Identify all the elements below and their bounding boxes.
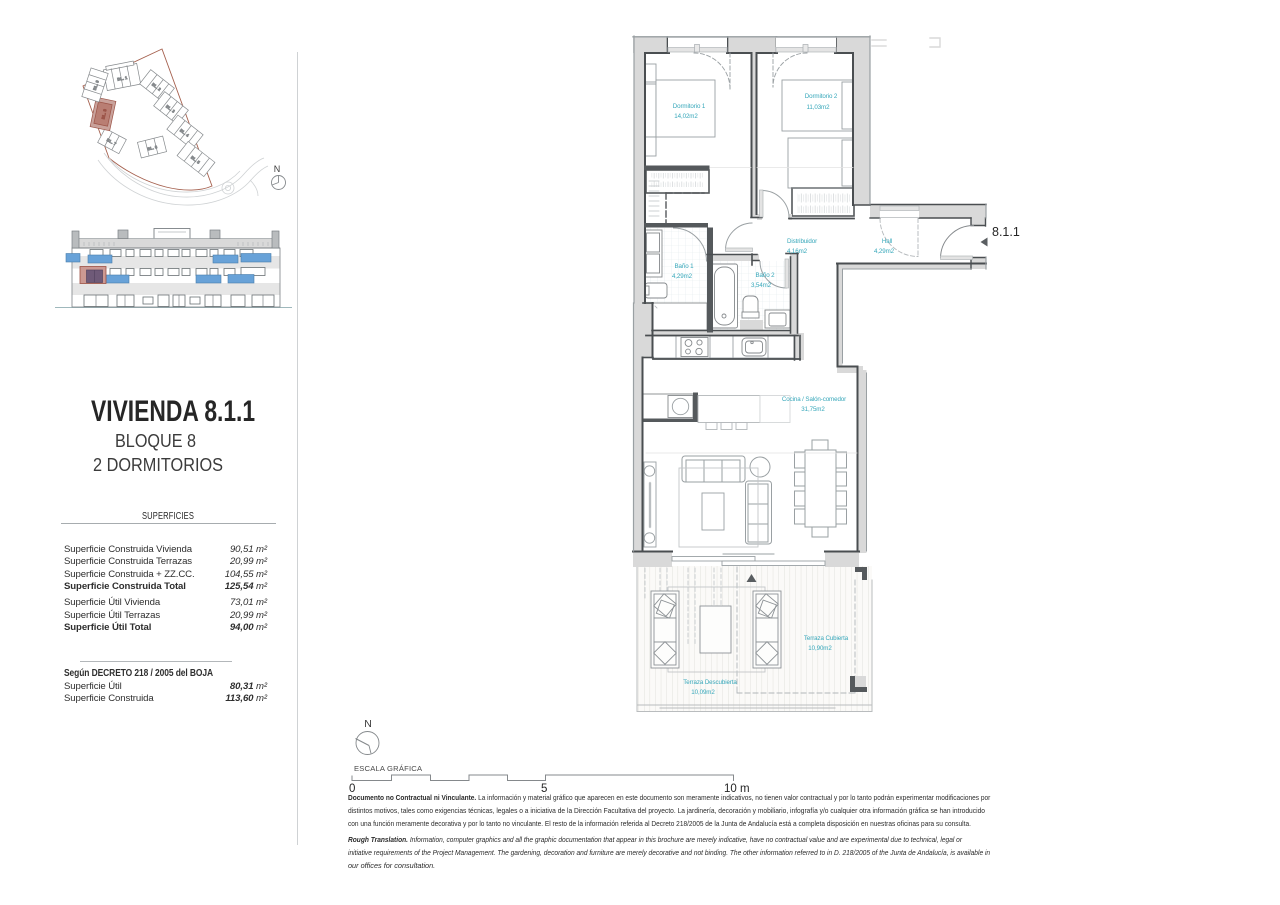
svg-text:4,29m2: 4,29m2	[672, 273, 693, 280]
svg-text:4,16m2: 4,16m2	[787, 248, 808, 255]
svg-text:Baño 2: Baño 2	[755, 272, 775, 279]
svg-text:N: N	[274, 164, 281, 174]
svg-text:14,02m2: 14,02m2	[674, 113, 698, 120]
svg-text:Hall: Hall	[882, 238, 892, 245]
svg-text:10,90m2: 10,90m2	[808, 645, 832, 652]
svg-text:Dormitorio 1: Dormitorio 1	[673, 103, 706, 110]
svg-text:Terraza Cubierta: Terraza Cubierta	[804, 635, 849, 642]
svg-text:31,75m2: 31,75m2	[801, 406, 825, 413]
svg-text:11,03m2: 11,03m2	[807, 104, 831, 111]
svg-text:Dormitorio 2: Dormitorio 2	[805, 93, 838, 100]
svg-text:Baño 1: Baño 1	[674, 263, 694, 270]
svg-text:Distribuidor: Distribuidor	[787, 238, 817, 245]
svg-text:Terraza Descubierta: Terraza Descubierta	[683, 679, 737, 686]
svg-text:4,29m2: 4,29m2	[874, 248, 895, 255]
svg-text:3,54m2: 3,54m2	[751, 282, 772, 289]
svg-text:10,09m2: 10,09m2	[691, 689, 715, 696]
svg-text:Cocina / Salón-comedor: Cocina / Salón-comedor	[782, 396, 846, 403]
svg-text:8.1.1: 8.1.1	[992, 225, 1020, 239]
svg-text:N: N	[364, 718, 372, 730]
